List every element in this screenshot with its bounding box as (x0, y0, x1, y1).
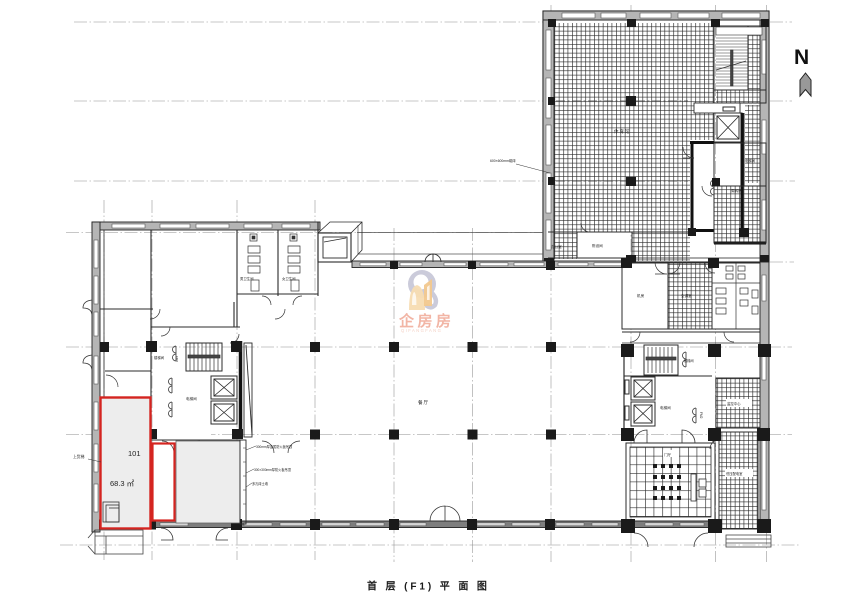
svg-text:门厅: 门厅 (664, 452, 672, 457)
svg-text:楼梯间: 楼梯间 (154, 355, 165, 360)
svg-text:办公室: 办公室 (551, 244, 562, 249)
svg-text:N: N (794, 46, 809, 69)
svg-text:上货梯: 上货梯 (73, 454, 85, 459)
svg-text:电梯间: 电梯间 (186, 396, 197, 401)
svg-text:600×600mm磁砖: 600×600mm磁砖 (490, 158, 516, 163)
svg-text:陈设间: 陈设间 (592, 243, 603, 248)
svg-text:女卫生间: 女卫生间 (282, 276, 296, 281)
svg-text:低压配电室: 低压配电室 (726, 471, 743, 476)
svg-text:多孔砖土墙: 多孔砖土墙 (252, 481, 269, 486)
svg-text:机房: 机房 (637, 293, 645, 298)
svg-text:电梯间: 电梯间 (660, 405, 671, 410)
svg-text:FM2: FM2 (699, 412, 703, 419)
svg-text:楼梯间: 楼梯间 (684, 358, 694, 363)
svg-text:周转房: 周转房 (731, 188, 742, 193)
svg-text:300mm厚金属防火板吊顶: 300mm厚金属防火板吊顶 (256, 444, 293, 449)
svg-text:68.3 ㎡: 68.3 ㎡ (110, 479, 135, 488)
svg-text:101: 101 (128, 449, 141, 458)
svg-text:300×300mm厚防火板吊顶: 300×300mm厚防火板吊顶 (254, 467, 292, 472)
svg-text:男卫生间: 男卫生间 (240, 276, 254, 281)
svg-text:空调室: 空调室 (681, 293, 692, 298)
svg-text:首 层 (F1) 平 面 图: 首 层 (F1) 平 面 图 (367, 580, 490, 593)
svg-text:QIFANGFANG: QIFANGFANG (401, 328, 442, 333)
svg-text:FM2: FM2 (175, 356, 179, 362)
svg-text:监控中心: 监控中心 (727, 401, 741, 406)
svg-text:体育馆: 体育馆 (614, 128, 631, 135)
svg-text:电梯间: 电梯间 (745, 158, 756, 163)
svg-text:餐厅: 餐厅 (418, 399, 429, 406)
